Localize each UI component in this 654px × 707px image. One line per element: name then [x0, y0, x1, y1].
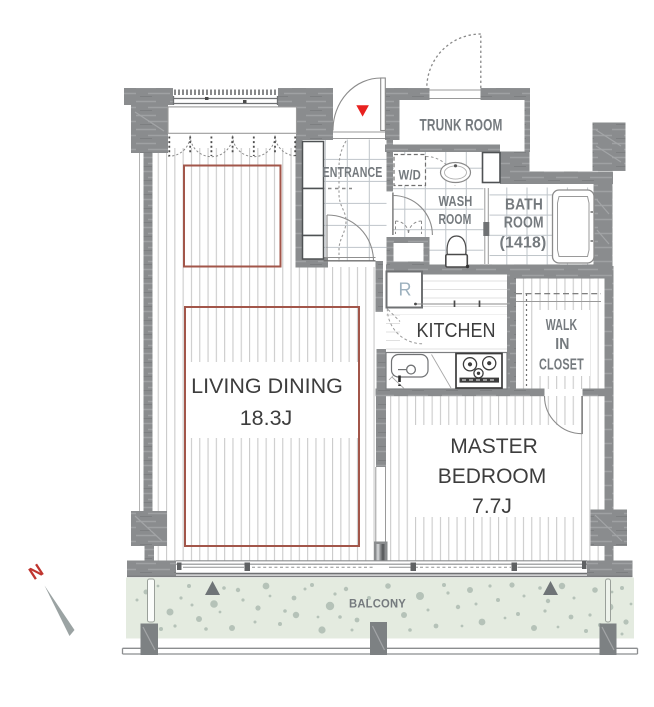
- svg-text:ENTRANCE: ENTRANCE: [323, 164, 383, 181]
- svg-text:W/D: W/D: [399, 168, 422, 183]
- svg-text:ROOM: ROOM: [504, 215, 544, 232]
- svg-text:(1418): (1418): [500, 235, 547, 252]
- svg-text:LIVING DINING: LIVING DINING: [191, 374, 343, 398]
- svg-text:CLOSET: CLOSET: [539, 357, 584, 374]
- svg-text:R: R: [399, 280, 412, 300]
- svg-text:BATH: BATH: [505, 197, 543, 214]
- svg-text:WASH: WASH: [439, 194, 473, 210]
- svg-text:BEDROOM: BEDROOM: [438, 465, 547, 488]
- svg-text:WALK: WALK: [546, 317, 578, 334]
- svg-text:IN: IN: [555, 336, 569, 353]
- svg-text:7.7J: 7.7J: [472, 495, 512, 518]
- svg-text:BALCONY: BALCONY: [349, 597, 406, 611]
- svg-text:18.3J: 18.3J: [240, 406, 293, 430]
- svg-text:KITCHEN: KITCHEN: [417, 319, 496, 342]
- svg-text:MASTER: MASTER: [450, 435, 538, 458]
- svg-text:TRUNK ROOM: TRUNK ROOM: [420, 116, 503, 135]
- svg-text:ROOM: ROOM: [439, 212, 472, 228]
